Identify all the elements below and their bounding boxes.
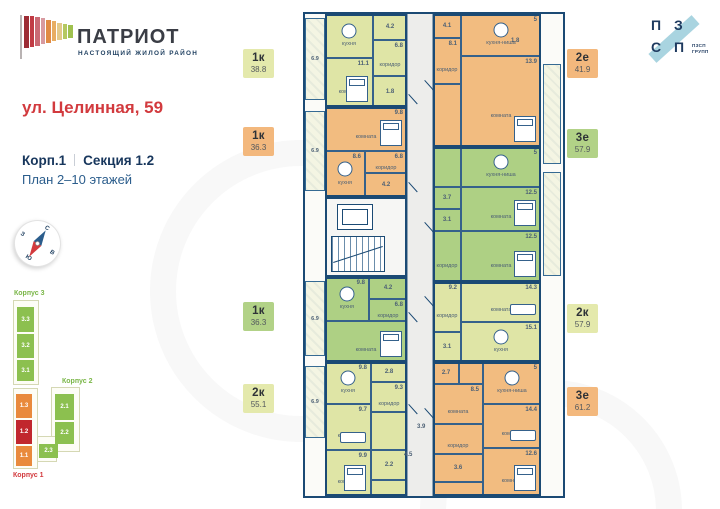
balcony: 6.9: [305, 111, 325, 191]
balcony: 6.9: [305, 366, 325, 438]
bed-icon: [380, 120, 402, 146]
room: 2.8: [371, 362, 407, 382]
room-коридор: коридор9.2: [433, 282, 461, 332]
room-комната: комната12.5: [461, 231, 541, 282]
room-комната: комната9.7: [325, 404, 371, 450]
badge-1к-36.3: 1к36.3: [243, 302, 274, 331]
room: 4.1: [433, 14, 461, 38]
flag-bar: [68, 25, 73, 38]
table-icon: [494, 23, 509, 38]
section-block-3.1: 3.1: [17, 360, 34, 381]
section-block-1.2: 1.2: [16, 420, 32, 444]
bed-icon: [514, 116, 536, 142]
room-кухня: кухня: [325, 14, 373, 58]
room-коридор: коридор6.8: [373, 40, 407, 76]
section-label: Секция 1.2: [83, 153, 154, 168]
bed-icon: [514, 251, 536, 277]
floorplan-poster: ПАТРИОТ НАСТОЯЩИЙ ЖИЛОЙ РАЙОН ул. Целинн…: [0, 0, 720, 509]
pzsp-letter: П: [674, 39, 684, 55]
room: [433, 147, 461, 187]
room-коридор: коридор6.8: [369, 299, 407, 321]
room-комната: комната9.9: [325, 450, 371, 496]
pzsp-letter: П: [651, 17, 661, 33]
building-section-line: Корп.1Секция 1.2: [22, 153, 154, 168]
room: [371, 480, 407, 496]
sofa-icon: [510, 430, 536, 441]
room-кухня: кухня15.1: [461, 322, 541, 362]
table-icon: [338, 161, 353, 176]
badge-2е-41.9: 2е41.9: [567, 49, 598, 78]
room: [433, 482, 483, 496]
pzsp-letter: С: [651, 39, 661, 55]
room-комната: комната12.5: [461, 187, 541, 231]
flag-bar: [57, 23, 62, 40]
brand-tagline: НАСТОЯЩИЙ ЖИЛОЙ РАЙОН: [78, 50, 198, 57]
flag-bar: [35, 17, 40, 46]
bed-icon: [346, 76, 368, 102]
room-кухня: кухня9.8: [325, 277, 369, 321]
room-кухня-ниша: кухня-ниша5: [461, 14, 541, 56]
room-комната: комната9.8: [325, 107, 407, 151]
room-коридор: коридор: [433, 231, 461, 282]
compass-icon: С В Ю З: [14, 220, 61, 267]
section-block-3.3: 3.3: [17, 307, 34, 332]
table-icon: [505, 371, 520, 386]
room: [459, 362, 483, 384]
room: 3.1: [433, 209, 461, 231]
room-комната: комната13.9: [461, 56, 541, 147]
room: 3.6: [433, 454, 483, 482]
korpus-outline: [35, 436, 57, 462]
elevator: [337, 204, 373, 230]
room-коридор: коридор9.3: [371, 382, 407, 412]
bed-icon: [344, 465, 366, 491]
bed-icon: [514, 200, 536, 226]
brand-name: ПАТРИОТ: [77, 26, 180, 49]
room-коридор: коридор8.1: [433, 38, 461, 84]
room-кухня: кухня8.6: [325, 151, 365, 197]
room-кухня-ниша: кухня-ниша5: [461, 147, 541, 187]
page-title-address: ул. Целинная, 59: [22, 98, 163, 118]
flag-bar: [52, 21, 57, 41]
room: 2.2: [371, 450, 407, 480]
korpus-outline: [13, 300, 39, 385]
room-комната: комната14.3: [461, 282, 541, 322]
room: 2.7: [433, 362, 459, 384]
room: 4.2: [373, 14, 407, 40]
section-block-2.3: 2.3: [39, 444, 58, 458]
patriot-flag-icon: [20, 15, 76, 61]
table-icon: [342, 23, 357, 38]
pzsp-letter: З: [674, 17, 683, 33]
room: 3.1: [433, 332, 461, 362]
area-label: 4.5: [404, 452, 412, 458]
room: [433, 84, 461, 147]
room: 3.7: [433, 187, 461, 209]
area-label: 1.8: [511, 38, 519, 44]
section-block-1.1: 1.1: [16, 446, 32, 466]
floors-label: План 2–10 этажей: [22, 172, 132, 187]
badge-3е-57.9: 3е57.9: [567, 129, 598, 158]
bed-icon: [380, 331, 402, 357]
bed-icon: [514, 465, 536, 491]
korpus-outline: [13, 388, 38, 469]
table-icon: [494, 330, 509, 345]
flag-bar: [30, 16, 35, 47]
flag-bar: [24, 16, 29, 48]
badge-1к-36.3: 1к36.3: [243, 127, 274, 156]
balcony: [543, 64, 561, 164]
badge-3е-61.2: 3е61.2: [567, 387, 598, 416]
korpus-label: Корпус 2: [62, 378, 93, 385]
section-block-3.2: 3.2: [17, 334, 34, 358]
korpus-label: Корпус 3: [14, 290, 45, 297]
badge-2к-57.9: 2к57.9: [567, 304, 598, 333]
room-кухня-ниша: кухня-ниша5: [483, 362, 541, 404]
room-кухня: кухня9.8: [325, 362, 371, 404]
area-label: 3.9: [417, 424, 425, 430]
room-комната: комната8.5: [433, 384, 483, 424]
stairs: [331, 236, 385, 272]
badge-1к-38.8: 1к38.8: [243, 49, 274, 78]
balcony: 6.9: [305, 281, 325, 356]
balcony: [543, 172, 561, 276]
flag-pole: [20, 15, 22, 59]
table-icon: [494, 155, 509, 170]
room: 4.2: [365, 173, 407, 197]
compass-needle: [5, 211, 70, 276]
room-комната: комната11.1: [325, 58, 373, 107]
room-комната: комната14.4: [483, 404, 541, 448]
divider: [74, 154, 75, 166]
table-icon: [340, 286, 355, 301]
room-коридор: коридор: [433, 424, 483, 454]
room-комната: комната12.6: [483, 448, 541, 496]
sofa-icon: [340, 432, 366, 443]
badge-2к-55.1: 2к55.1: [243, 384, 274, 413]
flag-bars: [24, 16, 74, 48]
korpus-outline: [51, 387, 80, 452]
floor-plan: кухня4.2коридор6.8комната11.11.8комната9…: [303, 12, 565, 498]
room: 1.8: [373, 76, 407, 107]
flag-bar: [41, 18, 46, 44]
section-block-1.3: 1.3: [16, 394, 32, 418]
pzsp-logo: П З С П ПЗСП ГРУПП: [648, 16, 720, 62]
room: [371, 412, 407, 450]
room: 4.2: [369, 277, 407, 299]
section-block-2.2: 2.2: [55, 422, 74, 444]
room-комната: комната: [325, 321, 407, 362]
section-block-2.1: 2.1: [55, 394, 74, 420]
flag-bar: [63, 24, 68, 39]
room-коридор: коридор6.8: [365, 151, 407, 173]
building-label: Корп.1: [22, 153, 66, 168]
flag-bar: [46, 20, 51, 43]
balcony: 6.9: [305, 18, 325, 100]
table-icon: [341, 371, 356, 386]
korpus-label: Корпус 1: [13, 472, 44, 479]
pzsp-caption: ПЗСП ГРУПП: [692, 43, 709, 54]
sofa-icon: [510, 304, 536, 315]
